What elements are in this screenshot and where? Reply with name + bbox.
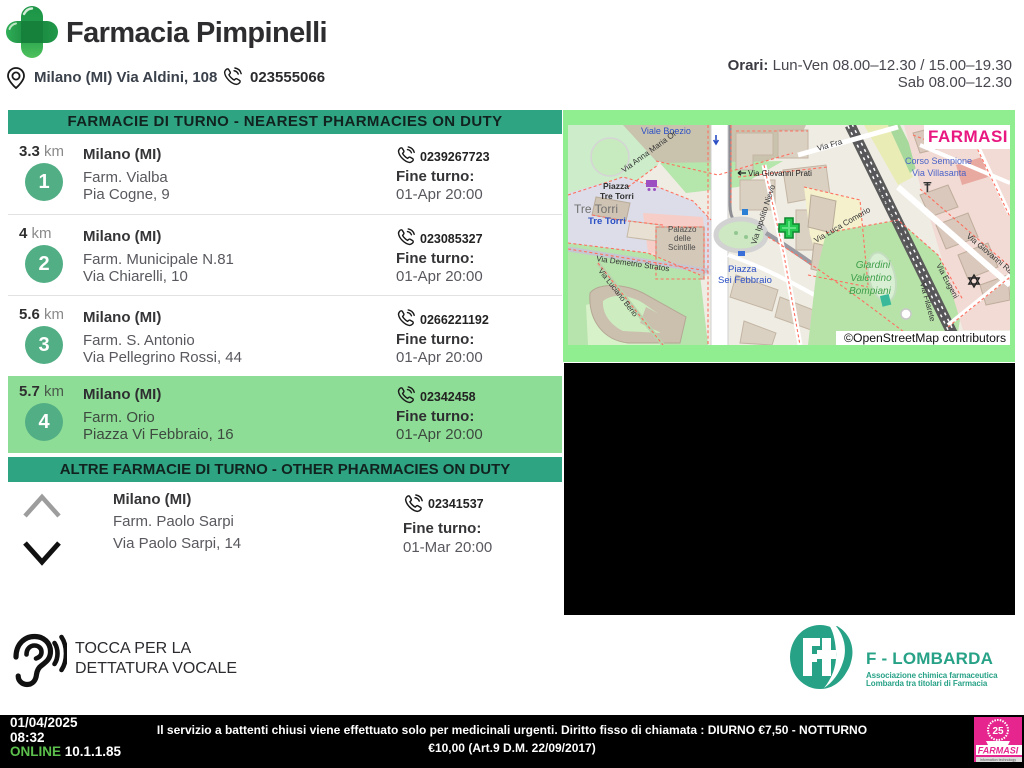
svg-text:FARMASI: FARMASI [928,127,1008,146]
svg-text:Giardini: Giardini [856,260,891,271]
svg-text:Bompiani: Bompiani [849,286,891,297]
svg-text:delle: delle [674,234,691,243]
svg-text:Piazza: Piazza [728,264,757,275]
svg-text:Valentino: Valentino [850,273,892,284]
svg-text:©OpenStreetMap contributors: ©OpenStreetMap contributors [844,331,1006,345]
svg-text:Sei Febbraio: Sei Febbraio [718,275,772,286]
svg-text:Palazzo: Palazzo [668,225,697,234]
svg-text:Tre Torri: Tre Torri [588,216,626,227]
svg-text:FARMASI: FARMASI [978,746,1019,756]
svg-text:Tre Torri: Tre Torri [600,191,634,201]
svg-text:25: 25 [992,726,1004,737]
svg-text:Via Giovanni Prati: Via Giovanni Prati [748,169,812,178]
svg-text:Tre Torri: Tre Torri [574,202,618,216]
svg-text:Via Villasanta: Via Villasanta [912,168,966,178]
svg-text:Corso Sempione: Corso Sempione [905,156,972,166]
svg-text:information technology: information technology [980,758,1016,762]
svg-text:Scintille: Scintille [668,243,696,252]
svg-text:Piazza: Piazza [603,181,629,191]
